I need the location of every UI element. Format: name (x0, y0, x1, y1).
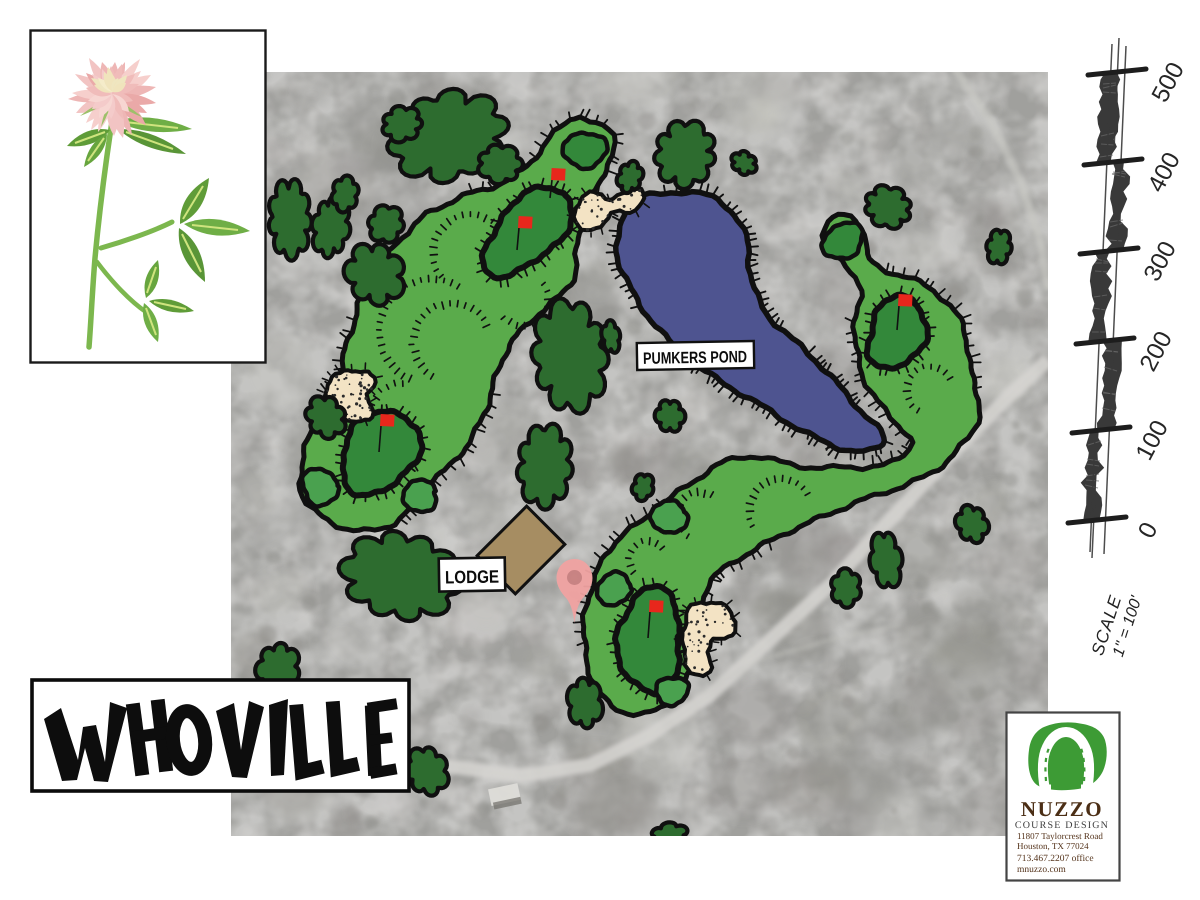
svg-text:COURSE DESIGN: COURSE DESIGN (1015, 820, 1109, 831)
svg-text:LODGE: LODGE (445, 567, 499, 588)
svg-text:PUMKERS POND: PUMKERS POND (643, 348, 747, 368)
svg-text:mnuzzo.com: mnuzzo.com (1017, 865, 1066, 875)
svg-text:11807 Taylorcrest Road: 11807 Taylorcrest Road (1017, 831, 1103, 841)
svg-text:713.467.2207 office: 713.467.2207 office (1017, 854, 1094, 864)
svg-text:Houston, TX 77024: Houston, TX 77024 (1017, 841, 1089, 851)
svg-text:NUZZO: NUZZO (1021, 797, 1103, 821)
